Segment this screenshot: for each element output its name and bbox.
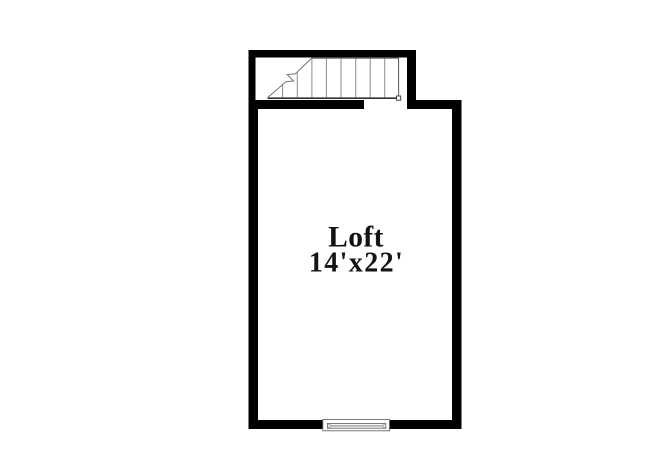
svg-text:14'x22': 14'x22' <box>309 248 404 279</box>
